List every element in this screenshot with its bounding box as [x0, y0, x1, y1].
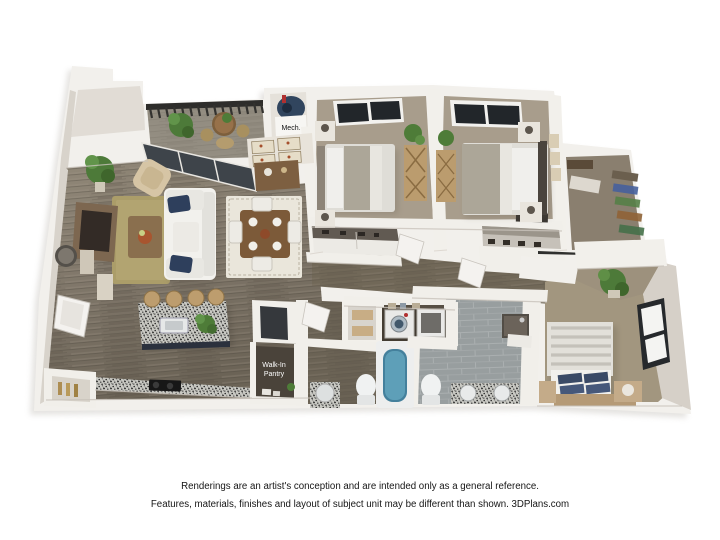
- svg-text:Walk-In: Walk-In: [262, 362, 286, 369]
- svg-text:Mech.: Mech.: [281, 125, 300, 132]
- svg-text:Pantry: Pantry: [264, 371, 285, 378]
